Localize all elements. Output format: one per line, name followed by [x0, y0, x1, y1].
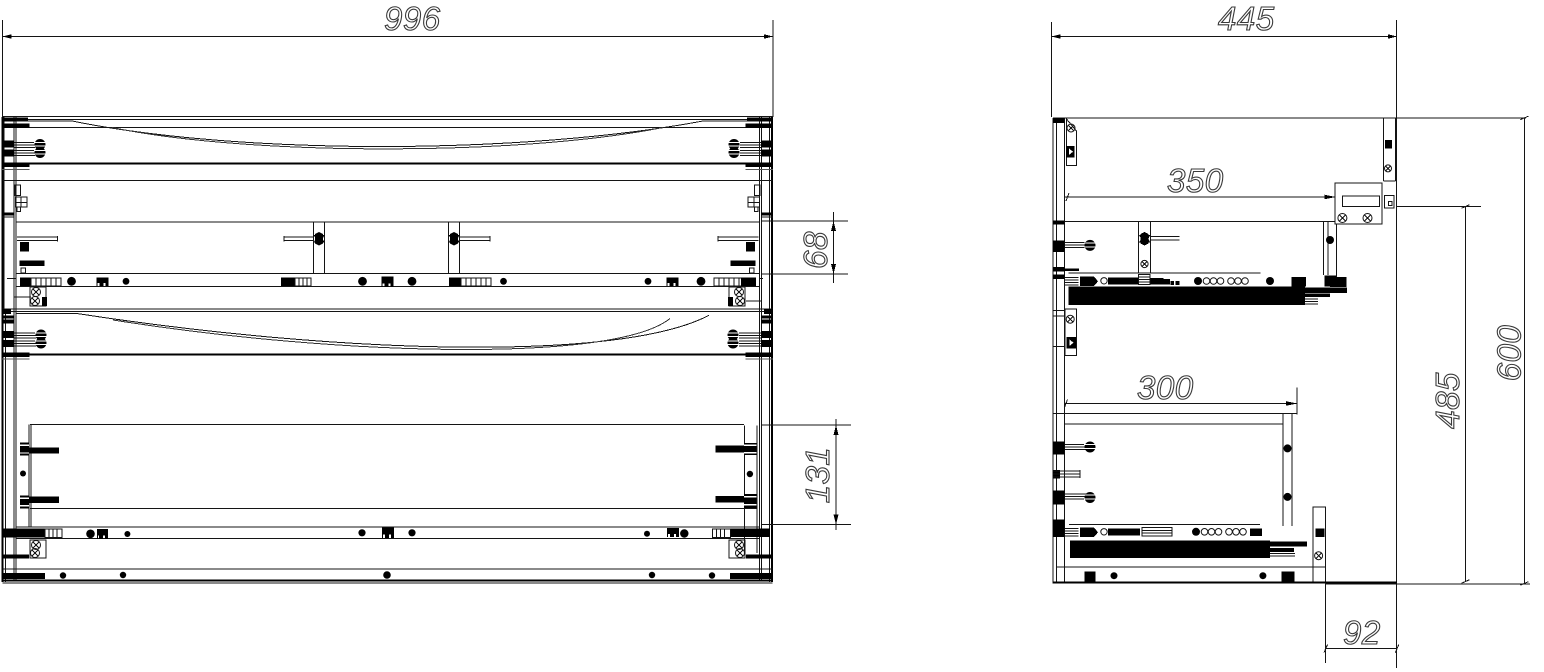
svg-text:131: 131	[799, 447, 836, 504]
svg-text:445: 445	[1218, 0, 1275, 37]
svg-text:600: 600	[1491, 325, 1528, 382]
svg-text:300: 300	[1137, 369, 1194, 406]
svg-text:996: 996	[384, 0, 441, 37]
svg-text:68: 68	[797, 231, 834, 269]
svg-text:485: 485	[1429, 372, 1466, 429]
svg-text:92: 92	[1343, 614, 1381, 651]
svg-text:350: 350	[1167, 162, 1224, 199]
